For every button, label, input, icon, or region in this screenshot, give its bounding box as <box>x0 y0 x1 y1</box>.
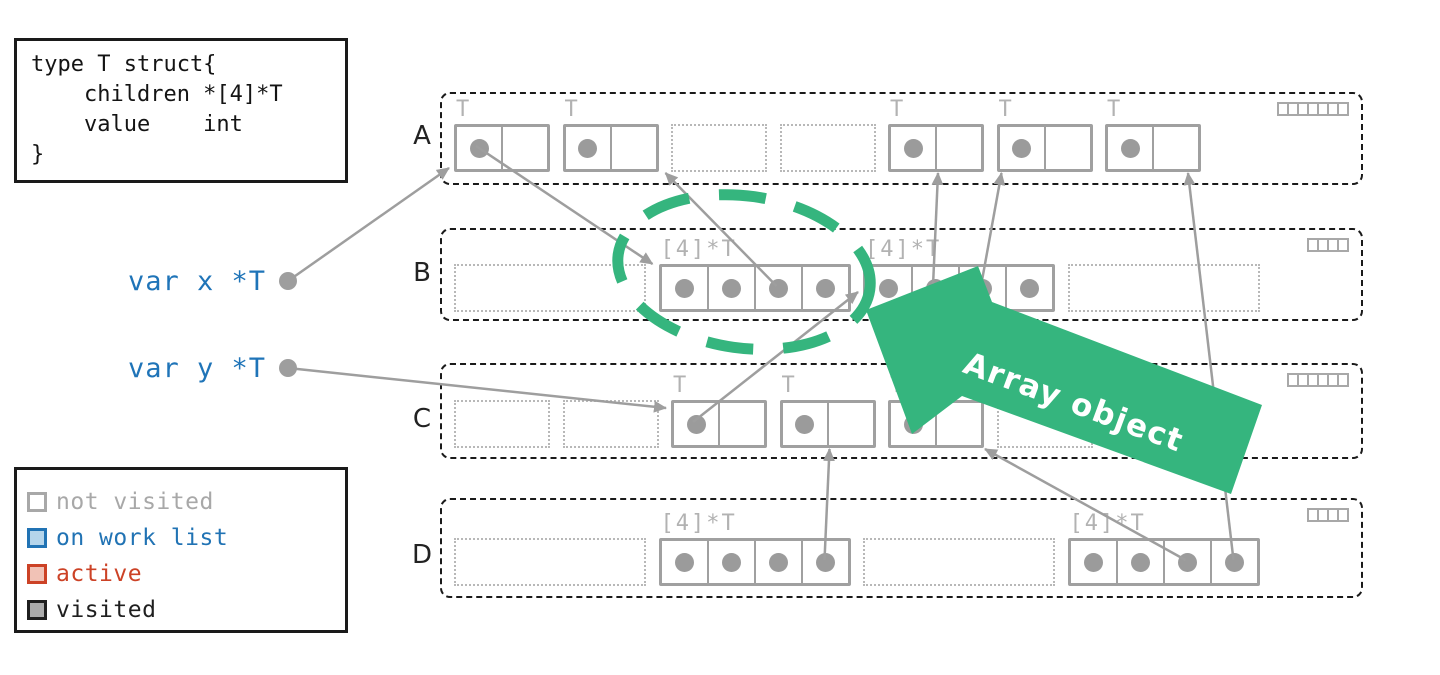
pointer-dot <box>904 139 923 158</box>
pointer-dot <box>1012 139 1031 158</box>
object-cell <box>960 267 1007 309</box>
object-cell <box>756 267 803 309</box>
legend-label: active <box>56 561 142 587</box>
code-line: value int <box>31 110 345 140</box>
object-cell <box>756 541 803 583</box>
pointer-dot <box>769 279 788 298</box>
pointer-dot <box>879 279 898 298</box>
heap-object <box>1068 538 1260 586</box>
region-label-D: D <box>406 540 438 570</box>
legend: not visitedon work listactivevisited <box>14 467 348 633</box>
pointer-dot <box>1225 553 1244 572</box>
bitmap-cell <box>1337 102 1349 116</box>
var-pointer-dot <box>279 359 297 377</box>
object-cell <box>866 267 913 309</box>
object-cell <box>913 267 960 309</box>
object-cell <box>937 403 981 445</box>
object-cell <box>891 127 937 169</box>
code-line: children *[4]*T <box>31 80 345 110</box>
type-label: [4]*T <box>865 237 941 262</box>
code-line: } <box>31 140 345 170</box>
code-line: type T struct{ <box>31 50 345 80</box>
object-cell <box>457 127 503 169</box>
var-y-label: var y *T <box>128 353 266 384</box>
type-label: T <box>1107 97 1122 122</box>
object-cell <box>662 541 709 583</box>
pointer-dot <box>816 279 835 298</box>
var-pointer-dot <box>279 272 297 290</box>
legend-swatch-icon <box>27 600 47 620</box>
type-label: T <box>890 97 905 122</box>
type-label: T <box>999 97 1014 122</box>
heap-region-D: [4]*T[4]*T <box>440 498 1363 598</box>
type-label: T <box>890 373 905 398</box>
type-definition-box: type T struct{ children *[4]*T value int… <box>14 38 348 183</box>
heap-object <box>997 124 1093 172</box>
region-label-C: C <box>406 404 438 434</box>
legend-label: not visited <box>56 489 214 515</box>
object-cell <box>566 127 612 169</box>
legend-swatch-icon <box>27 564 47 584</box>
heap-object <box>659 264 851 312</box>
type-label: [4]*T <box>661 237 737 262</box>
type-label: [4]*T <box>1070 511 1146 536</box>
pointer-dot <box>904 415 923 434</box>
pointer-dot <box>1020 279 1039 298</box>
heap-object <box>563 124 659 172</box>
object-cell <box>662 267 709 309</box>
heap-object <box>659 538 851 586</box>
pointer-dot <box>675 279 694 298</box>
pointer-dot <box>769 553 788 572</box>
heap-slot-free <box>563 400 659 448</box>
heap-object <box>780 400 876 448</box>
object-cell <box>503 127 547 169</box>
object-cell <box>937 127 981 169</box>
type-label: T <box>673 373 688 398</box>
pointer-dot <box>687 415 706 434</box>
heap-slot-free <box>454 400 550 448</box>
object-cell <box>674 403 720 445</box>
object-cell <box>612 127 656 169</box>
object-cell <box>1071 541 1118 583</box>
allocation-bitmap <box>1289 373 1349 387</box>
pointer-dot <box>926 279 945 298</box>
heap-slot-free <box>454 264 646 312</box>
var-x-label: var x *T <box>128 266 266 297</box>
object-cell <box>1165 541 1212 583</box>
pointer-dot <box>722 553 741 572</box>
legend-item: not visited <box>27 484 345 520</box>
heap-slot-free <box>780 124 876 172</box>
pointer-dot <box>1121 139 1140 158</box>
legend-item: visited <box>27 592 345 628</box>
bitmap-cell <box>1337 238 1349 252</box>
pointer-dot <box>1131 553 1150 572</box>
heap-region-B: [4]*T[4]*T <box>440 228 1363 321</box>
pointer-dot <box>578 139 597 158</box>
type-label: T <box>782 373 797 398</box>
heap-object <box>888 400 984 448</box>
heap-slot-free <box>997 400 1093 448</box>
legend-label: visited <box>56 597 156 623</box>
object-cell <box>1108 127 1154 169</box>
object-cell <box>1118 541 1165 583</box>
object-cell <box>720 403 764 445</box>
object-cell <box>783 403 829 445</box>
allocation-bitmap <box>1309 508 1349 522</box>
pointer-dot <box>795 415 814 434</box>
object-cell <box>829 403 873 445</box>
legend-label: on work list <box>56 525 228 551</box>
bitmap-cell <box>1337 373 1349 387</box>
heap-slot-free <box>1068 264 1260 312</box>
pointer-dot <box>675 553 694 572</box>
legend-swatch-icon <box>27 528 47 548</box>
heap-slot-free <box>454 538 646 586</box>
pointer-dot <box>973 279 992 298</box>
legend-swatch-icon <box>27 492 47 512</box>
gc-heap-diagram: type T struct{ children *[4]*T value int… <box>0 0 1440 675</box>
heap-object <box>671 400 767 448</box>
type-label: [4]*T <box>661 511 737 536</box>
heap-slot-free <box>671 124 767 172</box>
pointer-dot <box>816 553 835 572</box>
bitmap-cell <box>1337 508 1349 522</box>
object-cell <box>803 267 848 309</box>
heap-object <box>454 124 550 172</box>
object-cell <box>1154 127 1198 169</box>
heap-object <box>888 124 984 172</box>
type-label: T <box>565 97 580 122</box>
object-cell <box>709 267 756 309</box>
pointer-dot <box>722 279 741 298</box>
pointer-dot <box>1084 553 1103 572</box>
region-label-A: A <box>406 121 438 151</box>
legend-item: on work list <box>27 520 345 556</box>
legend-item: active <box>27 556 345 592</box>
pointer-dot <box>470 139 489 158</box>
object-cell <box>709 541 756 583</box>
object-cell <box>1000 127 1046 169</box>
region-label-B: B <box>406 258 438 288</box>
object-cell <box>1212 541 1257 583</box>
allocation-bitmap <box>1309 238 1349 252</box>
object-cell <box>803 541 848 583</box>
allocation-bitmap <box>1279 102 1349 116</box>
object-cell <box>1007 267 1052 309</box>
heap-region-C: TTT <box>440 363 1363 459</box>
pointer-dot <box>1178 553 1197 572</box>
heap-object <box>1105 124 1201 172</box>
type-label: T <box>456 97 471 122</box>
heap-slot-free <box>863 538 1055 586</box>
heap-region-A: TTTTT <box>440 92 1363 185</box>
object-cell <box>1046 127 1090 169</box>
object-cell <box>891 403 937 445</box>
heap-object <box>863 264 1055 312</box>
